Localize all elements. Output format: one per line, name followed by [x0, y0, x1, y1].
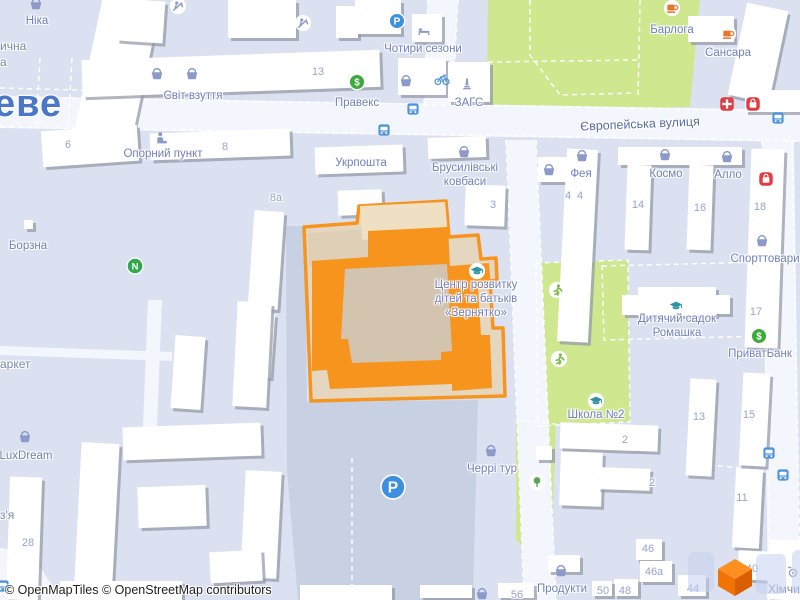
novus-icon[interactable]: N [126, 257, 144, 275]
tree-icon[interactable] [528, 473, 546, 491]
house-number: 2 [622, 433, 628, 447]
pharmacy-icon[interactable] [718, 95, 736, 113]
basket-icon[interactable] [718, 148, 736, 166]
attribution[interactable]: © OpenMapTiles © OpenStreetMap contribut… [5, 583, 272, 597]
coffee-icon[interactable] [719, 25, 737, 43]
bus-icon[interactable] [376, 122, 392, 138]
watermark-ghost-shape [756, 554, 786, 594]
poi-label: Продукти [537, 582, 587, 596]
poi-label: Барлога [650, 23, 694, 37]
bus-icon[interactable] [405, 101, 421, 117]
basket-icon[interactable] [753, 232, 771, 250]
poi-label: Дитячий садокРомашка [638, 312, 716, 340]
house-number: 56 [511, 588, 523, 600]
poi-label: Алло [714, 168, 742, 182]
poi-label: Світ взуття [163, 89, 222, 103]
poi-label: ЗАГС [455, 96, 484, 110]
bus-icon[interactable] [775, 467, 791, 483]
running-icon[interactable] [550, 350, 568, 368]
basket-icon[interactable] [397, 72, 415, 90]
svg-text:P: P [394, 17, 401, 28]
poi-label: Укрпошта [335, 156, 387, 170]
house-number: 2 [649, 476, 655, 490]
basket-icon[interactable] [183, 65, 201, 83]
money-icon[interactable]: $ [750, 327, 768, 345]
running-icon[interactable] [548, 281, 566, 299]
partial-label: а [0, 55, 7, 69]
house-number: 14 [632, 198, 644, 212]
basket-icon[interactable] [27, 0, 45, 13]
shopred-icon[interactable] [757, 170, 775, 188]
house-number: 13 [312, 65, 324, 79]
poi-label: Фея [570, 167, 591, 181]
house-number: 3 [490, 198, 496, 212]
poi-label: Космо [649, 167, 682, 181]
partial-label: аркет [0, 357, 31, 371]
house-number: 8 [222, 140, 228, 154]
basket-icon[interactable] [455, 143, 473, 161]
svg-text:N: N [132, 261, 139, 272]
poi-label: Ніка [26, 14, 49, 28]
playground-icon[interactable] [294, 14, 312, 32]
house-number: 46 [642, 542, 654, 556]
basket-icon[interactable] [16, 428, 34, 446]
basket-icon[interactable] [573, 147, 591, 165]
bicycle-icon[interactable] [433, 70, 451, 88]
house-number: 46а [645, 565, 663, 579]
monument-icon[interactable] [458, 75, 476, 93]
selected-feature-label: Центр розвиткудітей та батьків«Зернятко» [435, 278, 518, 320]
poi-label: LuxDream [0, 449, 53, 463]
house-number: 4 [577, 189, 583, 203]
poi-label: Школа №2 [568, 408, 625, 422]
svg-text:$: $ [354, 78, 360, 89]
svg-text:$: $ [756, 332, 762, 343]
money-icon[interactable]: $ [348, 73, 366, 91]
partial-label: ична [0, 39, 26, 53]
poi-label: Борзна [9, 239, 47, 253]
house-number: 6 [65, 138, 71, 152]
basket-icon[interactable] [148, 65, 166, 83]
bed-icon[interactable] [415, 21, 433, 39]
house-number: 50 [597, 584, 609, 598]
playground-icon[interactable] [169, 0, 187, 15]
poi-label: ПриватБанк [728, 347, 792, 361]
bus-icon[interactable] [761, 445, 777, 461]
house-number: 28 [22, 536, 34, 550]
partial-label: з'я [0, 508, 14, 522]
workplace-icon[interactable] [153, 129, 171, 147]
watermark-ghost-shape [688, 552, 714, 592]
parking-icon[interactable]: P [388, 12, 406, 30]
basket-icon[interactable] [540, 161, 558, 179]
poi-label: Опорний пункт [123, 147, 202, 161]
poi-label: Правекс [335, 96, 379, 110]
parking-big-icon[interactable]: P [380, 474, 406, 500]
poi-label: Сансара [705, 46, 751, 60]
map-canvas[interactable]: $$PPN НікаСвіт взуттяПравексЧотири сезон… [0, 0, 800, 600]
shopred-icon[interactable] [744, 95, 762, 113]
house-number: 16 [694, 201, 706, 215]
basket-icon[interactable] [656, 146, 674, 164]
house-number: 4 [565, 189, 571, 203]
basket-icon[interactable] [552, 562, 570, 580]
house-number: 48 [619, 584, 631, 598]
maptiler-cube-logo [714, 556, 756, 598]
coffee-icon[interactable] [663, 0, 681, 17]
poi-label: Чотири сезони [384, 42, 462, 56]
house-number: 15 [743, 408, 755, 422]
house-number: 13 [693, 410, 705, 424]
poi-label: Спорттовари [730, 252, 799, 266]
basket-icon[interactable] [473, 585, 491, 600]
basket-icon[interactable] [482, 442, 500, 460]
watermark-ghost-shape [792, 550, 800, 594]
house-number: 18 [754, 200, 766, 214]
bus-icon[interactable] [770, 110, 786, 126]
house-number: 8а [270, 191, 282, 205]
house-number: 11 [736, 491, 747, 505]
city-name-label: еве [0, 97, 62, 111]
poi-label: Черрі тур [467, 462, 517, 476]
poi-label: Брусилівськіковбаси [432, 161, 498, 189]
house-number: 17 [750, 305, 762, 319]
svg-text:P: P [388, 479, 398, 496]
